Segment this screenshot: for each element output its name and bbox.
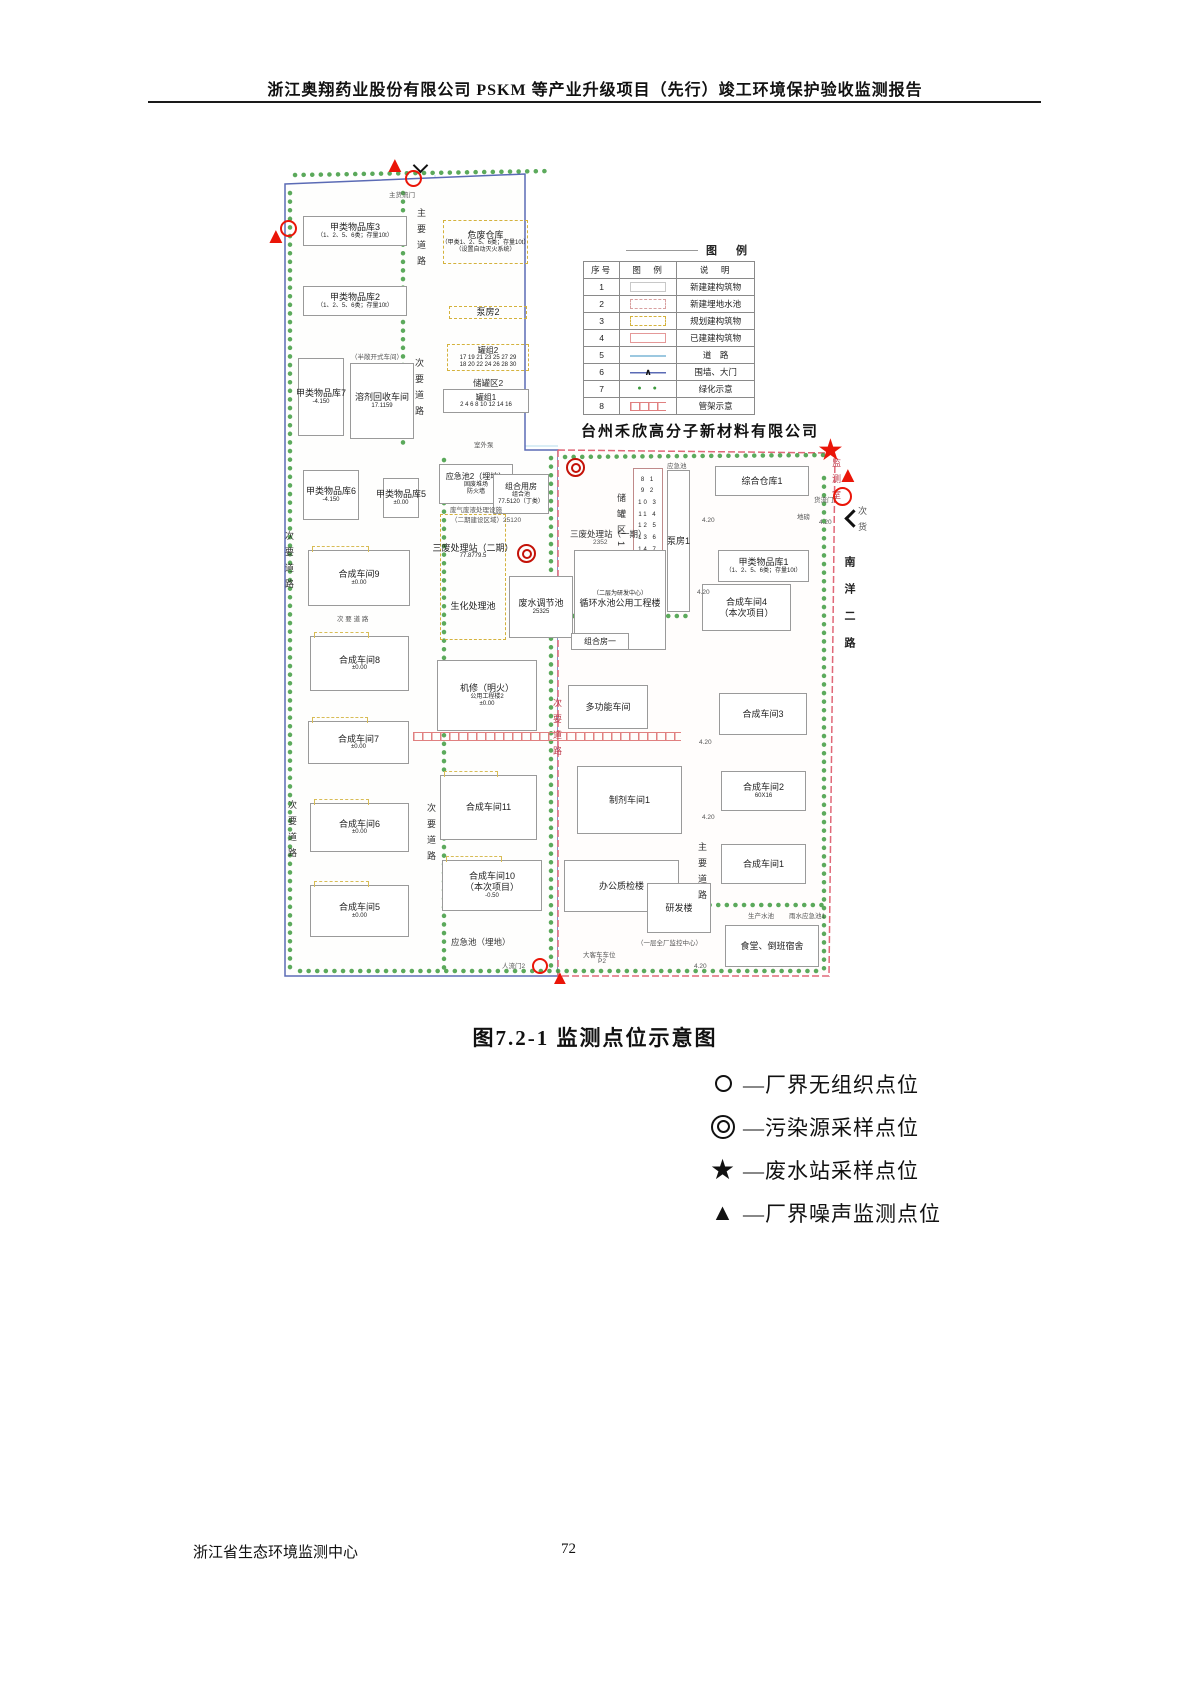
- building-label: 合成车间6: [339, 819, 380, 830]
- legend-row-desc: 已建建构筑物: [677, 330, 755, 347]
- legend-row-number: 6: [584, 364, 620, 381]
- jialei-wupinku-1: 甲类物品库1（1、2、5、6类；存量10t）: [718, 550, 809, 582]
- building-label: -0.50: [485, 893, 499, 900]
- neighbor-company-name: 台州禾欣高分子新材料有限公司: [581, 420, 819, 441]
- dcircle-marker: [517, 544, 536, 563]
- circle-marker: [405, 170, 422, 187]
- map-label: （二期建设区域）25120: [451, 514, 521, 524]
- building-label: 17.1159: [371, 403, 392, 410]
- shitang-daoban-sushe: 食堂、倒班宿舍: [725, 925, 819, 967]
- map-label: 次要道路: [551, 698, 564, 762]
- legend-row-number: 2: [584, 296, 620, 313]
- legend-swatch-pool: [630, 299, 666, 309]
- triangle-marker: ▲: [837, 464, 859, 486]
- legend-header-row: 序号 图 例 说 明: [584, 262, 755, 279]
- building-label: -4.150: [312, 399, 329, 406]
- map-label: 南洋二路: [841, 556, 857, 664]
- legend-swatch-built: [630, 333, 666, 343]
- boundary-noise-point-icon: ▲: [703, 1200, 743, 1226]
- map-label: 主要道路: [415, 208, 428, 272]
- building-label: 17 19 21 23 25 27 29: [460, 355, 517, 362]
- hecheng-chejian-6: 合成车间6±0.00: [310, 803, 409, 852]
- building-label: 77.8779.5: [460, 553, 487, 560]
- map-label: 室外泵: [474, 439, 494, 449]
- building-label: 食堂、倒班宿舍: [740, 941, 803, 952]
- zhiji-chejian-1: 制剂车间1: [577, 766, 682, 834]
- building-label: 合成车间11: [466, 802, 511, 813]
- jialei-wupinku-6: 甲类物品库6-4.150: [303, 470, 359, 520]
- map-label: 主货流门: [389, 189, 415, 199]
- building-label: 罐组1: [476, 393, 496, 402]
- building-label: ±0.00: [352, 913, 367, 920]
- hecheng-chejian-7: 合成车间7±0.00: [308, 721, 409, 764]
- map-label: 主要道路: [696, 842, 709, 906]
- map-label: 次要道路: [283, 531, 296, 595]
- building-label: 甲类物品库1: [738, 557, 788, 568]
- triangle-marker: ▲: [265, 225, 287, 247]
- legend-row-desc: 管架示意: [677, 398, 755, 415]
- building-label: （1、2、5、6类；存量10t）: [317, 303, 393, 310]
- building-label: 甲类物品库5: [376, 489, 426, 500]
- building-label: 泵房2: [476, 307, 499, 318]
- legend-swatch-road: [630, 355, 666, 357]
- hecheng-chejian-10: 合成车间10（本次项目）-0.50: [442, 860, 542, 911]
- building-label: 合成车间7: [338, 734, 379, 745]
- building-label: 三废处理站（二期）: [433, 543, 514, 554]
- legend-row-number: 1: [584, 279, 620, 296]
- zuhefang-yi: 组合房一: [571, 633, 629, 650]
- legend-title-line: [626, 250, 698, 251]
- building-label: 77.5120（丁类）: [498, 499, 544, 506]
- legend-swatch-plan: [630, 316, 666, 326]
- point-legend-noise: ▲ —厂界噪声监测点位: [703, 1191, 941, 1234]
- point-legend-label: —厂界噪声监测点位: [743, 1198, 941, 1228]
- map-label: 4.20: [699, 739, 712, 746]
- circle-marker: [833, 487, 852, 506]
- legend-row-desc: 道 路: [677, 347, 755, 364]
- jialei-wupinku-3: 甲类物品库3（1、2、5、6类；存量10t）: [303, 216, 407, 246]
- map-legend-title: 图 例: [583, 242, 755, 258]
- building-label: （设置自动灭火系统）: [455, 247, 515, 254]
- building-label: -4.150: [322, 497, 339, 504]
- map-label: 2352: [593, 539, 607, 546]
- legend-row-desc: 新建埋地水池: [677, 296, 755, 313]
- building-label: （本次项目）: [719, 608, 773, 619]
- wastewater-station-point-icon: ★: [703, 1153, 743, 1187]
- building-label: 9 2: [641, 486, 655, 498]
- jixiu-gongyong-gongchenglou-2: 机修（明火）公用工程楼2±0.00: [437, 660, 537, 731]
- map-label: 废气废液处理设施: [450, 504, 502, 514]
- chuguanqu-1-tanks: 8 19 210 311 412 513 614 7: [633, 468, 663, 563]
- map-label: 储罐区1: [615, 493, 628, 553]
- building-label: 制剂车间1: [609, 795, 650, 806]
- building-label: （1、2、5、6类；存量10t）: [317, 233, 393, 240]
- point-legend-label: —污染源采样点位: [743, 1112, 919, 1142]
- legend-row-symbol: [620, 296, 677, 313]
- building-label: 综合仓库1: [741, 476, 782, 487]
- building-label: 组合池: [512, 492, 530, 499]
- building-label: 8 1: [641, 475, 655, 487]
- map-label: 4.20: [819, 519, 832, 526]
- legend-row-desc: 围墙、大门: [677, 364, 755, 381]
- map-label: （一层全厂监控中心）: [637, 937, 702, 947]
- building-label: 11 4: [638, 510, 657, 522]
- report-header-title: 浙江奥翔药业股份有限公司 PSKM 等产业升级项目（先行）竣工环境保护验收监测报…: [0, 76, 1190, 100]
- building-label: （1、2、5、6类；存量10t）: [726, 568, 802, 575]
- site-plan-map: 图 例 序号 图 例 说 明 1新建建构筑物2新建埋地水池3规划建构筑物4已建建…: [253, 148, 878, 993]
- report-page: 浙江奥翔药业股份有限公司 PSKM 等产业升级项目（先行）竣工环境保护验收监测报…: [0, 0, 1190, 1683]
- legend-row: 6∧围墙、大门: [584, 364, 755, 381]
- footer-page-number: 72: [561, 1541, 576, 1558]
- map-label: 地磅: [797, 511, 810, 521]
- legend-row-symbol: [620, 313, 677, 330]
- feishui-tiaojiechi: 废水调节池25325: [509, 576, 573, 638]
- building-label: ±0.00: [351, 744, 366, 751]
- legend-row-desc: 新建建构筑物: [677, 279, 755, 296]
- map-label: 4.20: [697, 589, 710, 596]
- point-legend: —厂界无组织点位 —污染源采样点位 ★ —废水站采样点位 ▲ —厂界噪声监测点位: [703, 1062, 941, 1234]
- weifei-cangku: 危废仓库（甲类1、2、5、6类；存量10t）（设置自动灭火系统）: [443, 220, 528, 264]
- zonghe-cangku-1: 综合仓库1: [715, 466, 809, 496]
- building-label: 固废堆场: [464, 482, 488, 489]
- legend-row: 4已建建构筑物: [584, 330, 755, 347]
- rongji-huishou-chejian: 溶剂回收车间17.1159: [350, 363, 414, 439]
- jialei-wupinku-7: 甲类物品库7-4.150: [298, 358, 344, 436]
- building-label: 生化处理池: [450, 601, 495, 612]
- legend-swatch-green: ● ●: [630, 384, 666, 394]
- map-label: 应急池（埋地）: [451, 936, 511, 948]
- building-label: 甲类物品库7: [296, 388, 346, 399]
- hecheng-chejian-4: 合成车间4（本次项目）: [702, 584, 791, 631]
- map-legend: 图 例 序号 图 例 说 明 1新建建构筑物2新建埋地水池3规划建构筑物4已建建…: [583, 242, 755, 415]
- header-rule: [148, 101, 1041, 103]
- guanzu-1: 罐组12 4 6 8 10 12 14 16: [443, 389, 529, 413]
- building-label: 组合房一: [584, 637, 616, 646]
- building-label: ±0.00: [480, 701, 495, 708]
- triangle-marker: ▲: [550, 968, 570, 988]
- building-label: 研发楼: [665, 903, 692, 914]
- legend-row-symbol: ● ●: [620, 381, 677, 398]
- dcircle-marker: [566, 458, 585, 477]
- building-label: 甲类物品库2: [330, 292, 380, 303]
- building-label: 合成车间8: [339, 655, 380, 666]
- legend-row: 8管架示意: [584, 398, 755, 415]
- hecheng-chejian-9: 合成车间9±0.00: [308, 550, 410, 606]
- map-label: 次要道路: [425, 803, 438, 867]
- hecheng-chejian-11: 合成车间11: [440, 775, 537, 840]
- legend-col-no: 序号: [584, 262, 620, 279]
- legend-row-symbol: [620, 398, 677, 415]
- building-label: 甲类物品库6: [306, 486, 356, 497]
- building-label: 废水调节池: [518, 598, 563, 609]
- map-label: 4.20: [702, 814, 715, 821]
- building-label: 组合用房: [505, 482, 537, 491]
- building-label: 25325: [533, 609, 550, 616]
- point-legend-label: —厂界无组织点位: [743, 1069, 919, 1099]
- boundary-unorganized-point-icon: [703, 1075, 743, 1092]
- building-label: 机修（明火）: [460, 683, 514, 694]
- building-label: ±0.00: [352, 665, 367, 672]
- legend-row-number: 5: [584, 347, 620, 364]
- legend-swatch-new: [630, 282, 666, 292]
- pollution-source-point-icon: [703, 1115, 743, 1139]
- sanfei-chulizhan-erqi: 三废处理站（二期）77.8779.5生化处理池: [440, 514, 506, 640]
- map-label: （半敞开式车间）: [351, 351, 403, 361]
- legend-row: 5道 路: [584, 347, 755, 364]
- bengfang-1: 泵房1: [667, 470, 690, 612]
- pipe-rack: [413, 732, 681, 741]
- map-label: P2: [598, 958, 606, 965]
- map-label: 4.20: [694, 963, 707, 970]
- hecheng-chejian-8: 合成车间8±0.00: [310, 636, 409, 691]
- point-legend-label: —废水站采样点位: [743, 1155, 919, 1185]
- building-label: （本次项目）: [465, 882, 519, 893]
- building-label: 泵房1: [667, 536, 690, 547]
- legend-col-symbol: 图 例: [620, 262, 677, 279]
- building-label: 循环水池公用工程楼: [579, 598, 660, 609]
- map-label: 次 要 道 路: [337, 613, 368, 623]
- map-label: 三废处理站（一期）: [570, 528, 647, 540]
- hecheng-chejian-3: 合成车间3: [719, 693, 807, 735]
- map-label: 应急池: [667, 460, 687, 470]
- legend-row: 3规划建构筑物: [584, 313, 755, 330]
- building-label: 合成车间4: [726, 597, 767, 608]
- map-label: 生产水池: [748, 910, 774, 920]
- building-label: 办公质检楼: [599, 881, 644, 892]
- building-label: 合成车间9: [338, 569, 379, 580]
- building-label: ±0.00: [352, 580, 367, 587]
- point-legend-wastewater: ★ —废水站采样点位: [703, 1148, 941, 1191]
- building-label: 60X16: [755, 793, 772, 800]
- legend-row: 7● ●绿化示意: [584, 381, 755, 398]
- duogongneng-chejian: 多功能车间: [568, 685, 648, 729]
- map-label: 人流门2: [502, 960, 525, 970]
- building-label: 合成车间10: [469, 871, 515, 882]
- bengfang-2: 泵房2: [449, 306, 527, 319]
- legend-row-symbol: [620, 330, 677, 347]
- building-label: 合成车间3: [742, 709, 783, 720]
- building-label: 公用工程楼2: [470, 694, 503, 701]
- legend-swatch-wall: ∧: [630, 367, 666, 377]
- guanzu-2: 罐组217 19 21 23 25 27 2918 20 22 24 26 28…: [447, 344, 529, 371]
- point-legend-unorganized: —厂界无组织点位: [703, 1062, 941, 1105]
- legend-row-symbol: [620, 279, 677, 296]
- building-label: ±0.00: [394, 500, 409, 507]
- footer-organization: 浙江省生态环境监测中心: [193, 1541, 358, 1562]
- legend-row: 1新建建构筑物: [584, 279, 755, 296]
- building-label: 防火墙: [467, 489, 485, 496]
- legend-row-number: 3: [584, 313, 620, 330]
- legend-swatch-pipe: [630, 402, 666, 411]
- building-label: 合成车间5: [339, 902, 380, 913]
- map-label: 次要道路: [286, 800, 299, 864]
- legend-row-symbol: ∧: [620, 364, 677, 381]
- building-label: 2 4 6 8 10 12 14 16: [460, 402, 512, 409]
- map-label: 次要道路: [413, 358, 426, 422]
- map-label: 4.20: [702, 517, 715, 524]
- building-label: 18 20 22 24 26 28 30: [460, 362, 517, 369]
- building-label: 溶剂回收车间: [355, 392, 409, 403]
- legend-col-desc: 说 明: [677, 262, 755, 279]
- building-label: 合成车间1: [743, 859, 784, 870]
- legend-row-desc: 规划建构筑物: [677, 313, 755, 330]
- map-label: 储罐区2: [473, 377, 503, 389]
- map-label: 雨水应急池1: [789, 910, 825, 920]
- legend-row-number: 8: [584, 398, 620, 415]
- legend-row-symbol: [620, 347, 677, 364]
- figure-caption: 图7.2-1 监测点位示意图: [0, 1022, 1190, 1052]
- building-label: ±0.00: [352, 829, 367, 836]
- legend-row-number: 7: [584, 381, 620, 398]
- building-label: 合成车间2: [743, 782, 784, 793]
- jialei-wupinku-2: 甲类物品库2（1、2、5、6类；存量10t）: [303, 286, 407, 316]
- building-label: 危废仓库: [467, 230, 503, 241]
- legend-row-desc: 绿化示意: [677, 381, 755, 398]
- triangle-marker: ▲: [384, 154, 406, 176]
- hecheng-chejian-2: 合成车间260X16: [721, 771, 806, 811]
- point-legend-pollution-source: —污染源采样点位: [703, 1105, 941, 1148]
- legend-row-number: 4: [584, 330, 620, 347]
- building-label: 罐组2: [478, 346, 498, 355]
- hecheng-chejian-1: 合成车间1: [721, 844, 806, 884]
- building-label: 甲类物品库3: [330, 222, 380, 233]
- legend-row: 2新建埋地水池: [584, 296, 755, 313]
- hecheng-chejian-5: 合成车间5±0.00: [310, 885, 409, 937]
- jialei-wupinku-5: 甲类物品库5±0.00: [383, 478, 419, 518]
- building-label: 10 3: [638, 498, 658, 510]
- building-label: 多功能车间: [585, 702, 630, 713]
- circle-marker: [532, 958, 548, 974]
